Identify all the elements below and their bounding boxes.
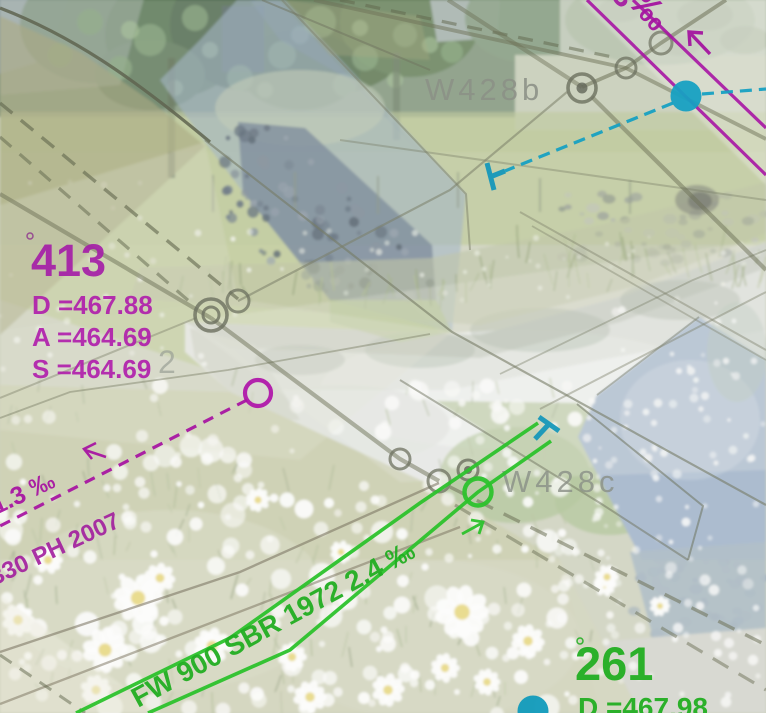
svg-text:A =464.69: A =464.69 xyxy=(32,322,152,352)
svg-text:W428c: W428c xyxy=(502,464,618,499)
svg-text:S =464.69: S =464.69 xyxy=(32,354,151,384)
svg-text:W428b: W428b xyxy=(425,72,543,107)
svg-text:D =467.98: D =467.98 xyxy=(578,692,708,713)
svg-text:261: 261 xyxy=(575,637,653,690)
svg-text:D =467.88: D =467.88 xyxy=(32,290,153,320)
svg-text:2: 2 xyxy=(158,344,176,380)
svg-text:413: 413 xyxy=(31,235,106,286)
